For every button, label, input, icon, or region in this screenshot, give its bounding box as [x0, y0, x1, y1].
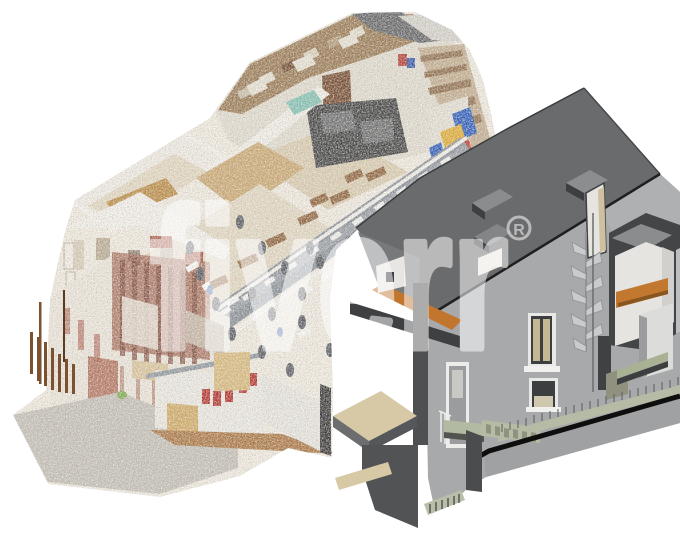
- svg-text:fiverr: fiverr: [150, 168, 508, 391]
- svg-text:R: R: [513, 222, 525, 239]
